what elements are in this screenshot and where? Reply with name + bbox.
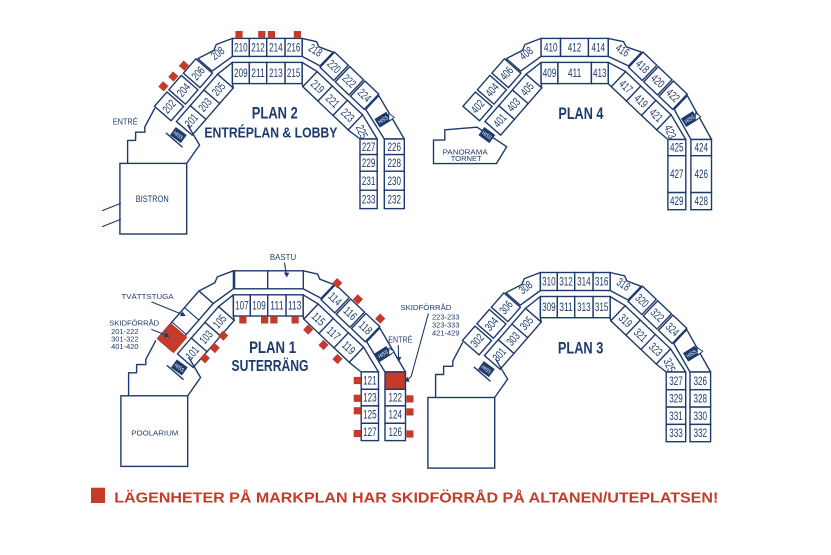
svg-text:333: 333 [669,427,683,440]
svg-text:PLAN 2: PLAN 2 [252,105,298,123]
svg-text:TVÄTTSTUGA: TVÄTTSTUGA [122,292,174,301]
svg-text:SUTERRÄNG: SUTERRÄNG [232,358,309,375]
svg-text:PLAN 4: PLAN 4 [558,105,604,123]
svg-text:122: 122 [388,392,402,405]
svg-text:ENTRÉ: ENTRÉ [388,336,412,345]
svg-text:124: 124 [388,409,402,422]
svg-text:214: 214 [269,42,283,55]
svg-text:211: 211 [251,67,265,80]
svg-text:314: 314 [577,276,591,289]
svg-text:411: 411 [568,67,582,80]
svg-text:107: 107 [235,300,249,313]
svg-text:121: 121 [363,375,377,388]
svg-text:309: 309 [542,301,556,314]
svg-text:ENTRÉ: ENTRÉ [113,118,138,127]
svg-text:326: 326 [694,375,708,388]
svg-text:428: 428 [694,195,708,208]
svg-text:209: 209 [234,67,248,80]
svg-text:113: 113 [288,300,302,313]
svg-text:POOLARIUM: POOLARIUM [131,428,178,437]
svg-text:SKIDFÖRRÅD: SKIDFÖRRÅD [400,303,451,312]
svg-text:316: 316 [595,276,609,289]
svg-text:426: 426 [694,168,708,181]
svg-text:311: 311 [559,301,573,314]
svg-text:228: 228 [388,157,402,170]
svg-text:210: 210 [234,42,248,55]
svg-text:215: 215 [287,67,301,80]
svg-text:226: 226 [388,141,402,154]
svg-text:401-420: 401-420 [111,342,138,351]
svg-text:216: 216 [287,42,301,55]
svg-text:313: 313 [577,301,591,314]
svg-text:425: 425 [670,142,684,155]
svg-text:315: 315 [595,301,609,314]
svg-text:212: 212 [251,42,265,55]
svg-text:327: 327 [669,375,683,388]
svg-text:233: 233 [362,194,376,207]
svg-text:BISTRON: BISTRON [136,194,169,205]
svg-text:229: 229 [362,157,376,170]
svg-text:413: 413 [593,67,607,80]
svg-text:PLAN 1: PLAN 1 [249,339,296,357]
svg-text:LÄGENHETER PÅ MARKPLAN HAR SKI: LÄGENHETER PÅ MARKPLAN HAR SKIDFÖRRÅD PÅ… [114,489,718,506]
svg-text:125: 125 [363,409,377,422]
svg-text:412: 412 [568,42,582,55]
svg-text:123: 123 [363,392,377,405]
svg-text:PLAN 3: PLAN 3 [558,339,604,357]
svg-text:230: 230 [388,175,402,188]
svg-text:332: 332 [694,427,708,440]
svg-text:424: 424 [694,142,708,155]
svg-text:427: 427 [670,168,684,181]
svg-text:429: 429 [670,195,684,208]
svg-text:111: 111 [270,300,284,313]
svg-text:109: 109 [252,300,266,313]
svg-text:409: 409 [543,67,557,80]
svg-text:231: 231 [362,175,376,188]
svg-text:213: 213 [269,67,283,80]
svg-text:330: 330 [694,410,708,423]
svg-text:227: 227 [362,141,376,154]
svg-text:BASTU: BASTU [270,253,297,262]
svg-text:331: 331 [669,410,683,423]
svg-text:310: 310 [542,276,556,289]
svg-text:TORNET: TORNET [451,154,482,163]
svg-text:232: 232 [388,194,402,207]
svg-text:410: 410 [544,42,558,55]
svg-text:329: 329 [669,393,683,406]
svg-text:127: 127 [363,426,377,439]
svg-text:312: 312 [559,276,573,289]
svg-text:126: 126 [388,426,402,439]
svg-text:421-429: 421-429 [432,328,460,337]
svg-text:ENTRÉPLAN & LOBBY: ENTRÉPLAN & LOBBY [204,124,337,141]
svg-text:328: 328 [694,393,708,406]
svg-text:414: 414 [592,42,606,55]
